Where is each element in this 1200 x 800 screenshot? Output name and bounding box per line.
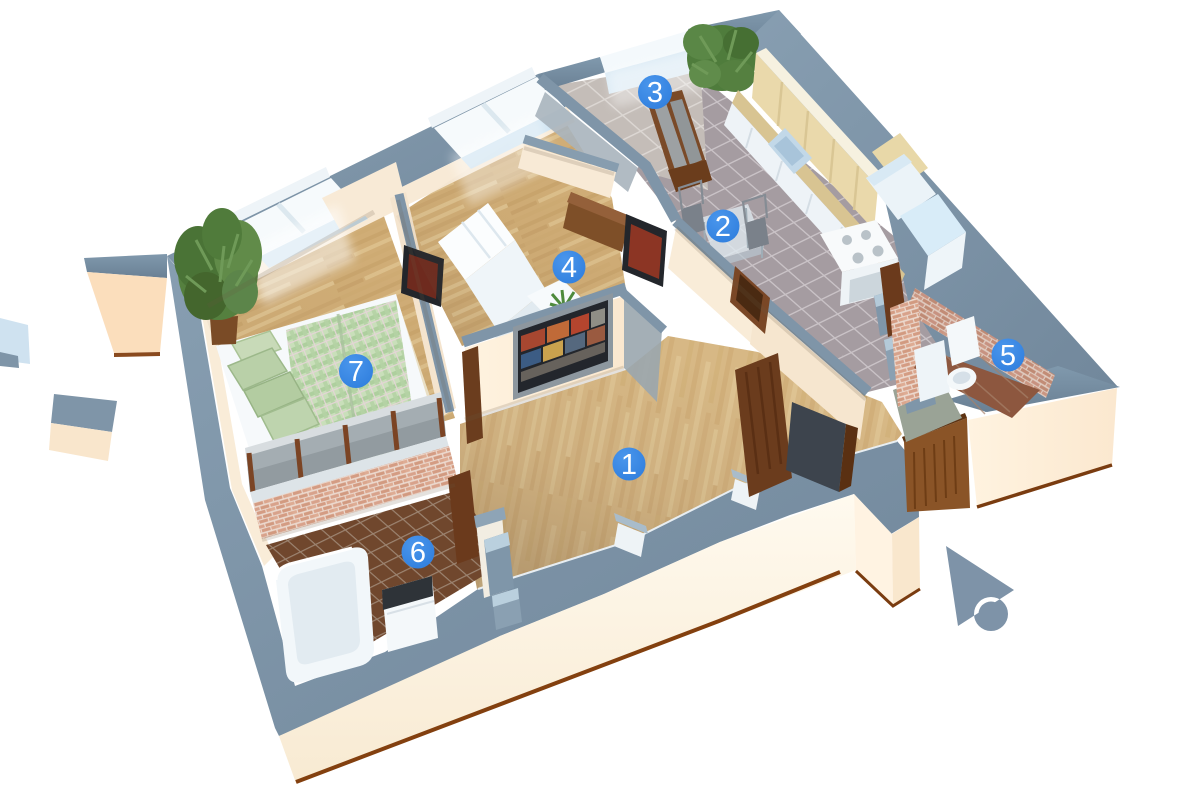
svg-text:2: 2 [715, 211, 731, 243]
svg-text:1: 1 [621, 449, 637, 481]
svg-text:3: 3 [647, 77, 663, 109]
svg-text:7: 7 [348, 356, 364, 388]
svg-text:4: 4 [561, 252, 577, 284]
svg-text:5: 5 [1000, 340, 1016, 372]
svg-text:6: 6 [410, 537, 426, 569]
